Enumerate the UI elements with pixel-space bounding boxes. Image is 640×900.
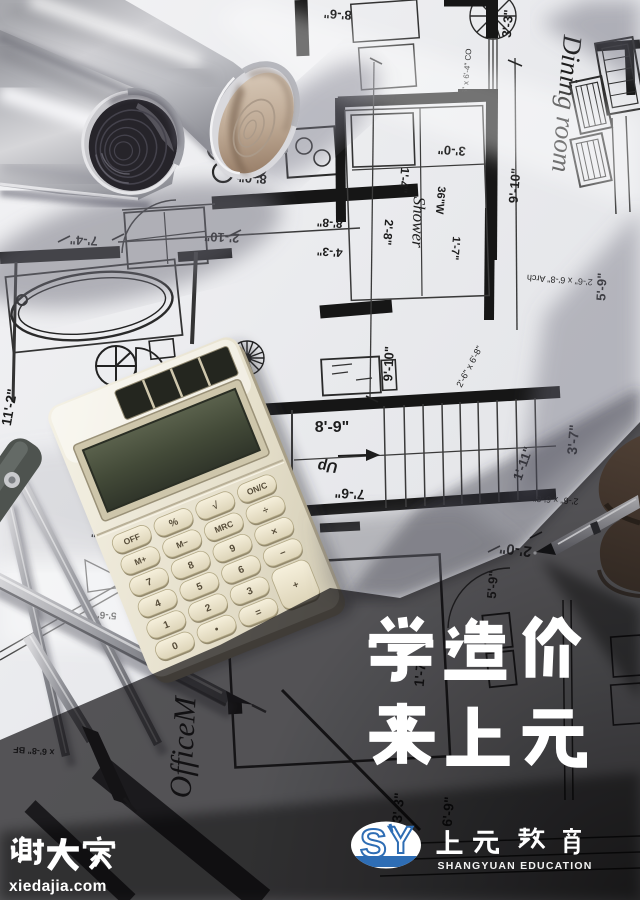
svg-text:SHANGYUAN EDUCATION: SHANGYUAN EDUCATION — [437, 860, 592, 872]
svg-text:Up: Up — [317, 457, 338, 475]
svg-text:36"W: 36"W — [433, 186, 447, 215]
svg-text:8'-6": 8'-6" — [323, 6, 352, 23]
svg-text:2'-8": 2'-8" — [380, 219, 396, 246]
svg-text:1'-4": 1'-4" — [396, 167, 412, 194]
svg-text:8'-9": 8'-9" — [315, 419, 350, 436]
svg-text:4'-3": 4'-3" — [316, 244, 343, 260]
svg-text:8'-8": 8'-8" — [316, 215, 343, 231]
svg-text:3'-0": 3'-0" — [437, 142, 466, 159]
svg-text:3'-3": 3'-3" — [499, 9, 516, 38]
svg-text:1'-7": 1'-7" — [448, 236, 462, 261]
svg-text:Y: Y — [388, 820, 413, 862]
svg-text:Shower: Shower — [408, 196, 429, 248]
svg-text:S: S — [360, 822, 387, 866]
svg-text:xiedajia.com: xiedajia.com — [9, 878, 107, 895]
svg-text:9'-10": 9'-10" — [506, 167, 524, 203]
